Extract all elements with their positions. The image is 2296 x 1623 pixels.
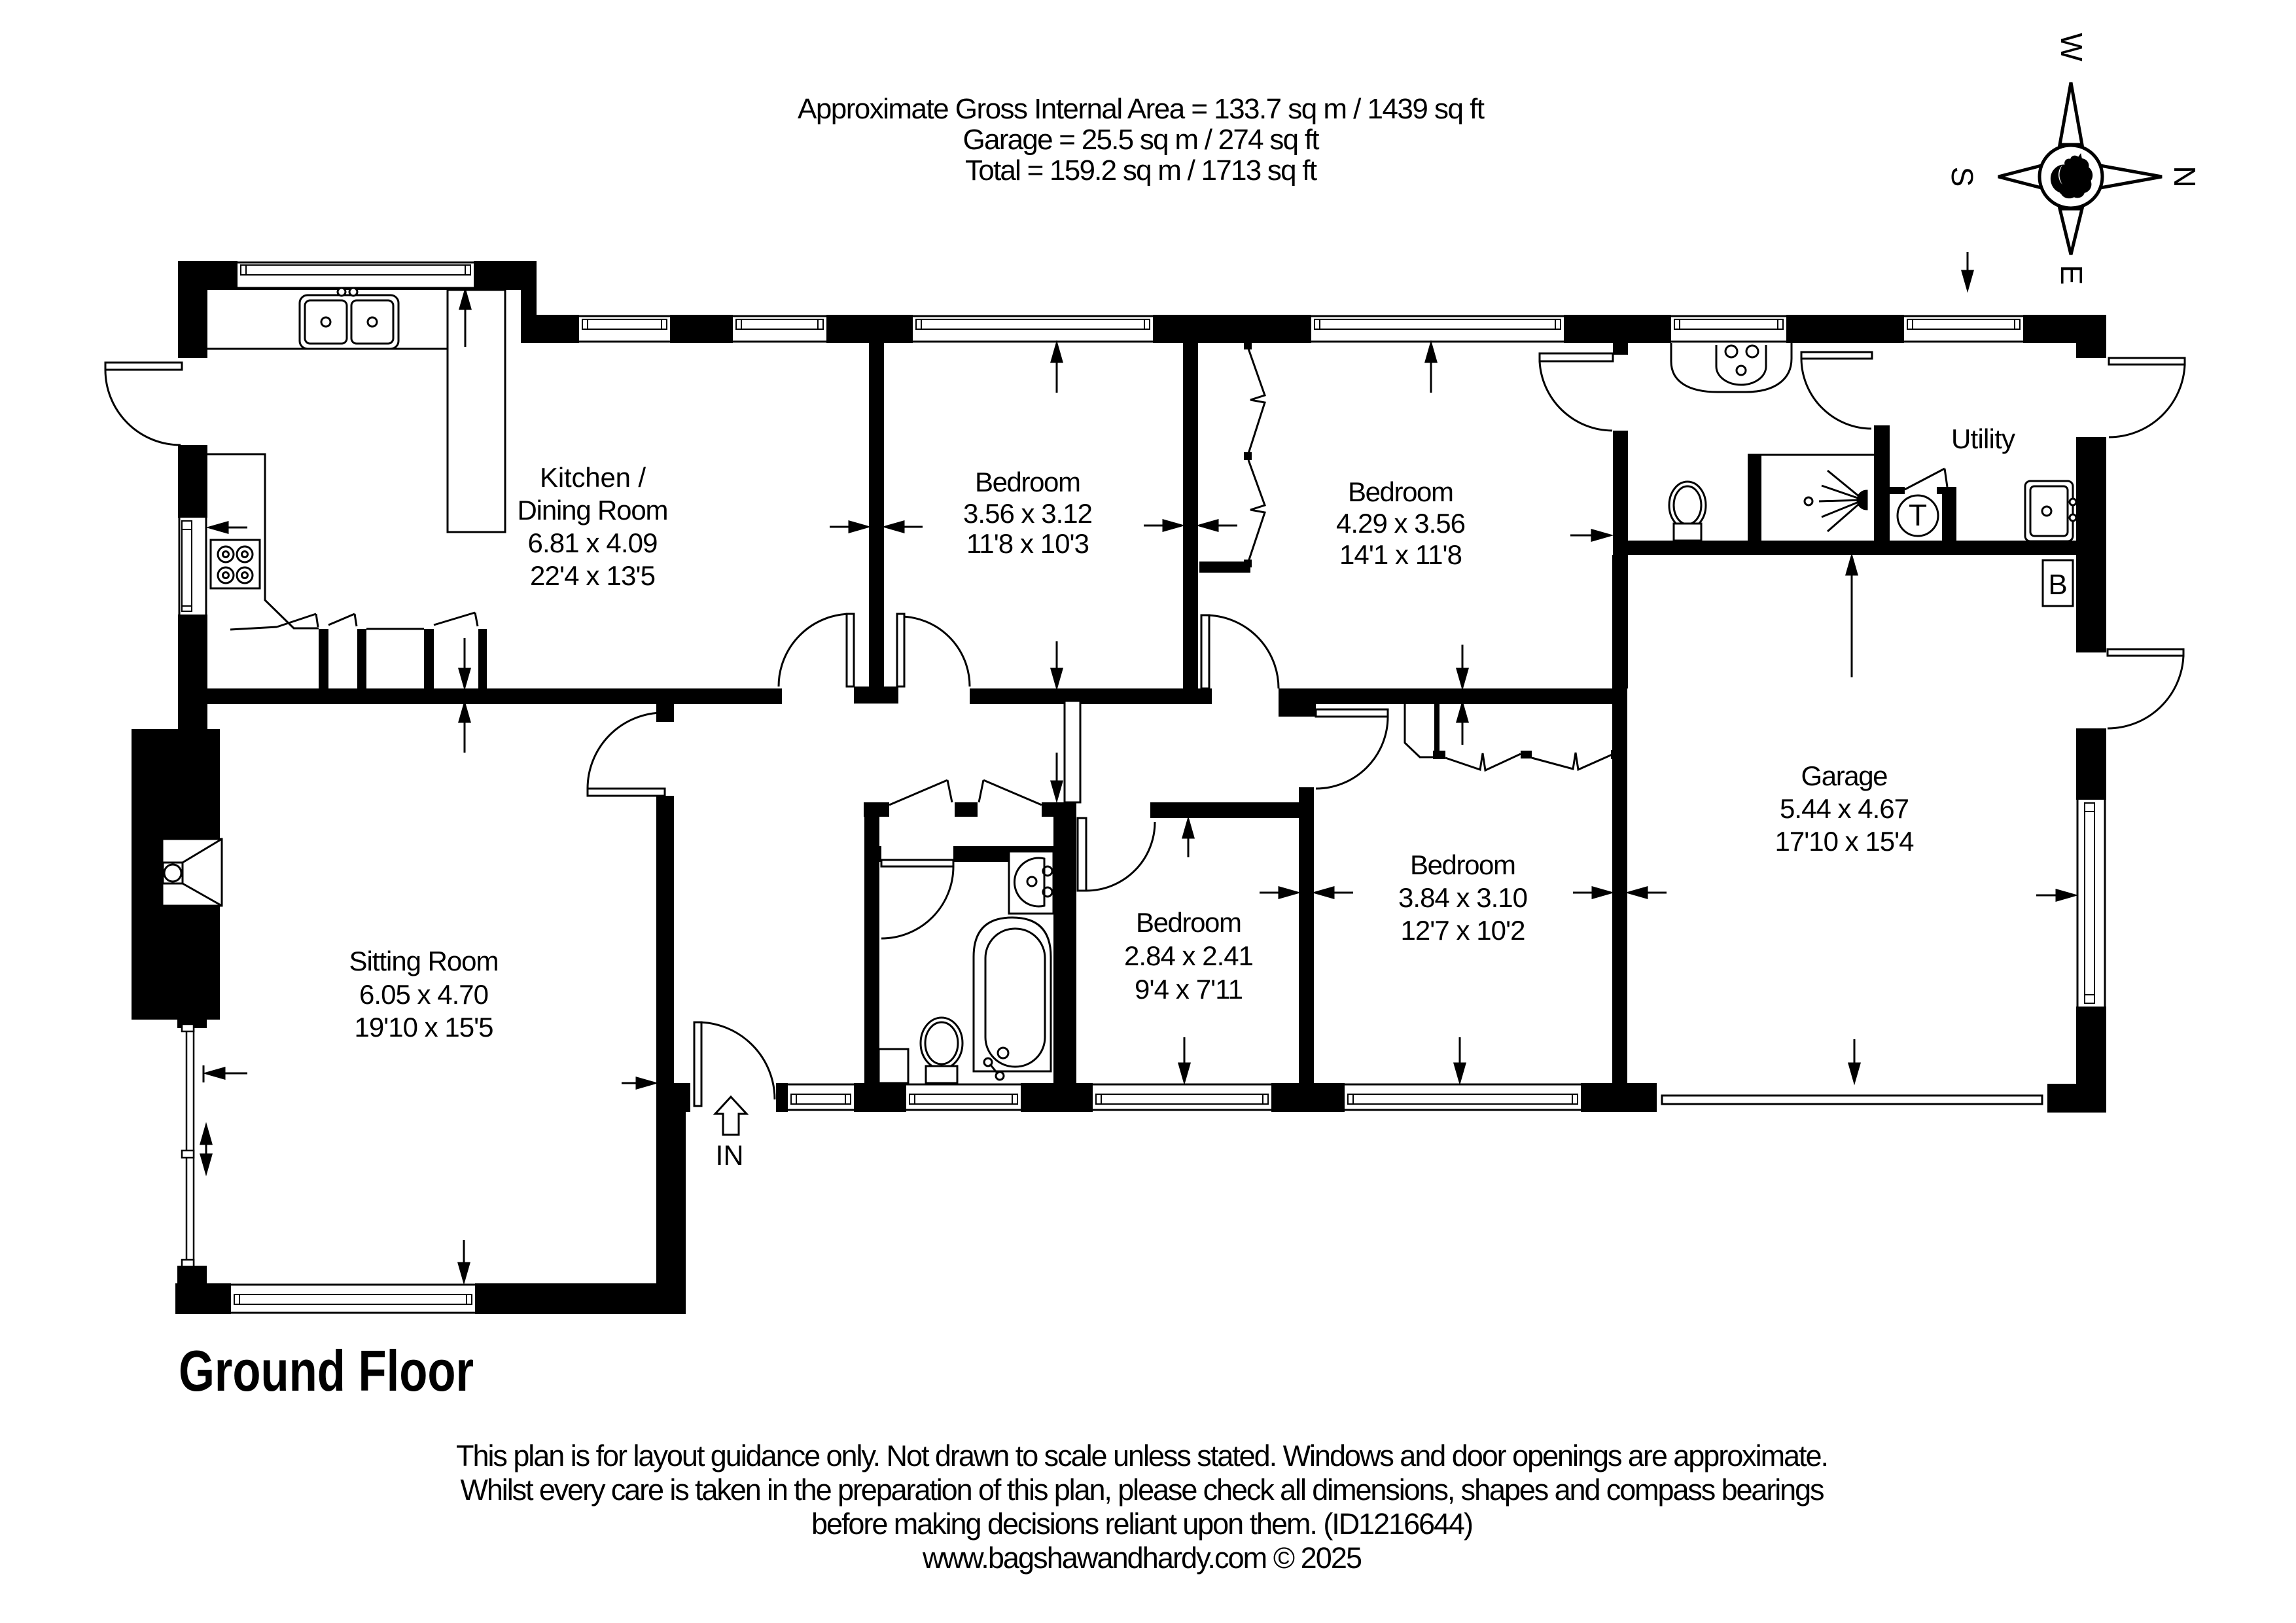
svg-text:Utility: Utility [1951,423,2015,454]
svg-text:This plan is for layout guidan: This plan is for layout guidance only. N… [456,1439,1829,1472]
svg-text:Ground Floor: Ground Floor [179,1338,474,1403]
svg-text:Garage: Garage [1801,760,1888,791]
svg-text:B: B [2048,569,2067,601]
svg-text:12'7 x 10'2: 12'7 x 10'2 [1401,915,1526,946]
svg-text:Bedroom: Bedroom [1410,849,1516,880]
svg-text:Bedroom: Bedroom [975,467,1081,497]
svg-text:2.84 x 2.41: 2.84 x 2.41 [1124,940,1254,971]
svg-text:Bedroom: Bedroom [1348,476,1454,507]
svg-text:IN: IN [716,1140,744,1171]
svg-text:3.84 x 3.10: 3.84 x 3.10 [1398,882,1528,913]
svg-text:S: S [1945,167,1979,187]
svg-text:4.29 x 3.56: 4.29 x 3.56 [1336,508,1466,539]
svg-text:17'10 x 15'4: 17'10 x 15'4 [1775,826,1915,857]
svg-text:E: E [2055,265,2089,285]
svg-text:Whilst every care is taken in: Whilst every care is taken in the prepar… [461,1473,1825,1507]
svg-text:Garage = 25.5 sq m / 274 sq ft: Garage = 25.5 sq m / 274 sq ft [963,124,1320,156]
svg-text:Dining Room: Dining Room [518,495,669,526]
svg-text:11'8 x 10'3: 11'8 x 10'3 [966,528,1089,559]
svg-text:W: W [2055,33,2089,62]
svg-text:9'4 x 7'11: 9'4 x 7'11 [1135,974,1243,1005]
svg-text:3.56 x 3.12: 3.56 x 3.12 [963,498,1093,529]
svg-text:6.81 x 4.09: 6.81 x 4.09 [528,527,658,558]
svg-text:before making decisions relian: before making decisions reliant upon the… [811,1507,1474,1541]
svg-text:6.05 x 4.70: 6.05 x 4.70 [359,979,489,1010]
svg-text:Sitting Room: Sitting Room [349,946,499,976]
svg-text:www.bagshawandhardy.com © 2025: www.bagshawandhardy.com © 2025 [922,1541,1362,1575]
svg-text:5.44 x 4.67: 5.44 x 4.67 [1780,793,1909,824]
svg-text:Total = 159.2 sq m / 1713 sq f: Total = 159.2 sq m / 1713 sq ft [965,154,1317,187]
svg-text:N: N [2168,166,2202,187]
svg-text:14'1 x 11'8: 14'1 x 11'8 [1339,539,1462,570]
svg-text:T: T [1909,498,1927,532]
svg-text:22'4 x 13'5: 22'4 x 13'5 [530,560,656,591]
svg-text:Kitchen /: Kitchen / [540,462,646,493]
svg-text:Bedroom: Bedroom [1136,907,1242,938]
svg-text:Approximate Gross Internal Are: Approximate Gross Internal Area = 133.7 … [798,93,1485,125]
svg-text:19'10 x 15'5: 19'10 x 15'5 [355,1012,494,1043]
